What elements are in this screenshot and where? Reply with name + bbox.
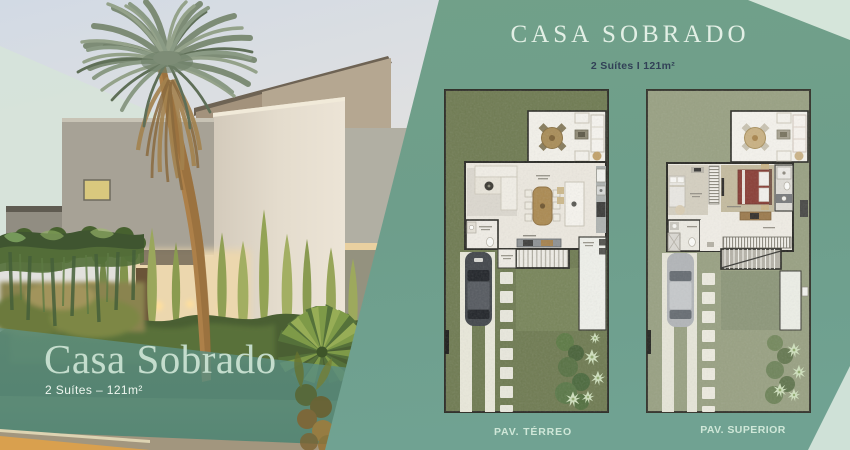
svg-text:Casa Sobrado: Casa Sobrado (44, 336, 277, 382)
svg-text:PAV. SUPERIOR: PAV. SUPERIOR (700, 424, 786, 436)
svg-text:CASA SOBRADO: CASA SOBRADO (510, 21, 749, 48)
svg-text:2 Suítes – 121m²: 2 Suítes – 121m² (45, 383, 143, 397)
svg-text:PAV. TÉRREO: PAV. TÉRREO (494, 425, 572, 438)
svg-text:2 Suítes I 121m²: 2 Suítes I 121m² (591, 60, 675, 72)
